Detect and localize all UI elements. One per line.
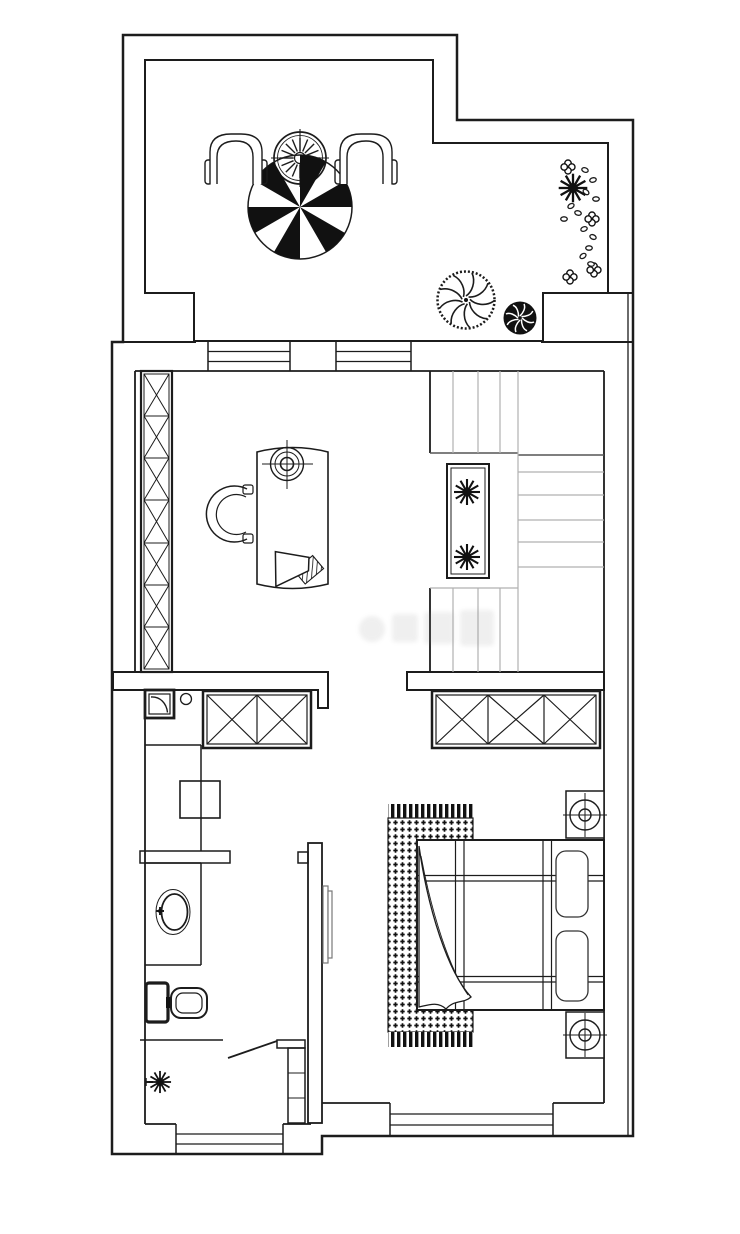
bathroom-divider-wall: [140, 851, 230, 863]
flowerbed-starburst: [559, 174, 588, 203]
flower-bed: [559, 160, 601, 284]
pillow-bottom: [556, 931, 588, 1001]
nightstand-top: [563, 791, 607, 838]
study: [141, 371, 328, 672]
floor-plan-canvas: [0, 0, 740, 1234]
shelf-column: [277, 1040, 305, 1123]
terrace-chair-left: [205, 134, 267, 184]
bed: [417, 840, 604, 1010]
partition-wall: [308, 843, 322, 1123]
floor-plan: [0, 0, 740, 1234]
bathroom-bottom-wall: [145, 1124, 311, 1154]
wall-tv: [323, 886, 332, 963]
toilet: [146, 983, 207, 1022]
patio-umbrella: [248, 155, 352, 259]
large-bush: [438, 272, 495, 329]
bedroom-bottom-wall: [322, 1103, 604, 1136]
sink-faucet: [156, 907, 164, 915]
stairwell: [430, 371, 604, 672]
rug-fringe-bottom: [388, 1032, 473, 1047]
terrace-chair-right: [335, 134, 397, 184]
door-leaf: [228, 1041, 277, 1058]
study-wardrobe: [141, 371, 172, 672]
bedroom: [323, 691, 607, 1058]
bedroom-wardrobe: [432, 691, 600, 748]
desk-chair: [206, 485, 253, 543]
bathroom: [140, 690, 311, 1123]
pillow-top: [556, 851, 588, 917]
faucet-circle: [181, 694, 192, 705]
terrace-inner-wall: [145, 60, 608, 341]
nightstand-bottom: [563, 1012, 607, 1058]
partition-jamb-tab: [298, 852, 308, 863]
counter: [145, 745, 201, 965]
middle-wall-right: [407, 672, 604, 690]
bathroom-cabinet: [203, 691, 311, 748]
window-study-2: [336, 342, 411, 371]
washing-machine: [180, 781, 220, 818]
planter-plant-top: [454, 479, 480, 505]
stair-treads: [430, 371, 604, 672]
corner-basin: [145, 690, 174, 718]
watermark: [359, 610, 494, 646]
small-bush: [504, 302, 537, 335]
rug-fringe-top: [388, 804, 473, 818]
bathroom-plant: [146, 1071, 171, 1093]
sink: [156, 890, 190, 935]
window-study-1: [208, 342, 290, 371]
stair-planter: [447, 464, 489, 578]
planter-plant-bottom: [454, 544, 480, 570]
terrace: [205, 129, 601, 335]
toilet-tank: [146, 983, 168, 1022]
